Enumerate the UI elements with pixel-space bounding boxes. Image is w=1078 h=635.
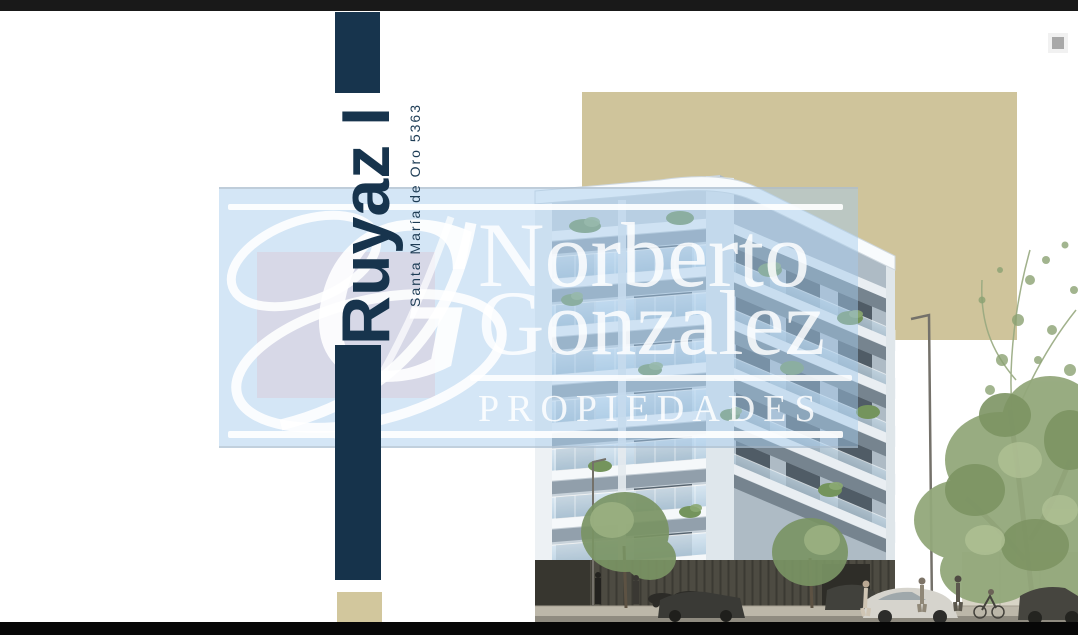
brand-bar-bottom-segment: [335, 345, 381, 580]
gray-marker-square: [1052, 37, 1064, 49]
agency-name-line2: Gonzalez: [478, 283, 825, 363]
agency-tagline: PROPIEDADES: [478, 387, 824, 431]
watermark-mid-rule: [470, 375, 852, 381]
watermark-bottom-rule: [228, 431, 843, 438]
letterbox-bar-top: [0, 0, 1078, 11]
brand-bar-top-segment: [335, 12, 380, 93]
brochure-page: G Norberto Gonzalez PROPIEDADES Ruyaz I …: [0, 0, 1078, 635]
tan-accent-square: [337, 592, 382, 622]
agency-watermark: G Norberto Gonzalez PROPIEDADES: [219, 187, 858, 448]
large-tree: [914, 242, 1078, 621]
project-address: Santa María de Oro 5363: [405, 99, 425, 311]
project-title: Ruyaz I: [321, 103, 411, 349]
letterbox-bar-bottom: [0, 622, 1078, 635]
